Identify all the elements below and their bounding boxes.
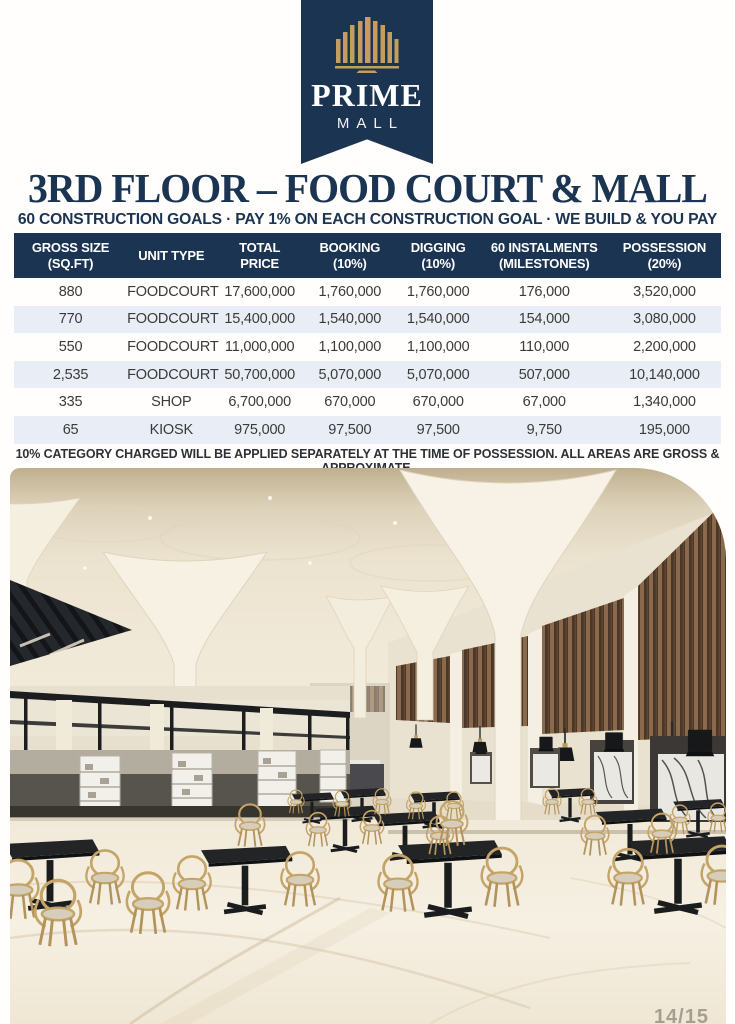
table-cell: 770 bbox=[14, 306, 127, 334]
flyer-page: PRIME MALL 3RD FLOOR – FOOD COURT & MALL… bbox=[0, 0, 735, 1024]
table-cell: 1,540,000 bbox=[304, 306, 396, 334]
table-cell: 670,000 bbox=[396, 388, 481, 416]
table-cell: 975,000 bbox=[215, 416, 303, 444]
table-cell: 67,000 bbox=[481, 388, 608, 416]
table-header-cell: DIGGING(10%) bbox=[396, 233, 481, 278]
table-cell: 176,000 bbox=[481, 278, 608, 306]
table-cell: 10,140,000 bbox=[608, 361, 721, 389]
table-cell: 1,540,000 bbox=[396, 306, 481, 334]
table-cell: 50,700,000 bbox=[215, 361, 303, 389]
table-cell: 335 bbox=[14, 388, 127, 416]
table-cell: 3,080,000 bbox=[608, 306, 721, 334]
table-row: 550 FOODCOURT 11,000,000 1,100,000 1,100… bbox=[14, 333, 721, 361]
table-cell: 9,750 bbox=[481, 416, 608, 444]
table-row: 335 SHOP 6,700,000 670,000 670,000 67,00… bbox=[14, 388, 721, 416]
table-cell: 5,070,000 bbox=[304, 361, 396, 389]
table-cell: 11,000,000 bbox=[215, 333, 303, 361]
table-cell: 507,000 bbox=[481, 361, 608, 389]
table-cell: 1,100,000 bbox=[396, 333, 481, 361]
table-row: 65 KIOSK 975,000 97,500 97,500 9,750 195… bbox=[14, 416, 721, 444]
table-cell: KIOSK bbox=[127, 416, 215, 444]
table-cell: 1,760,000 bbox=[396, 278, 481, 306]
table-row: 880 FOODCOURT 17,600,000 1,760,000 1,760… bbox=[14, 278, 721, 306]
table-header-cell: GROSS SIZE(SQ.FT) bbox=[14, 233, 127, 278]
page-title: 3RD FLOOR – FOOD COURT & MALL bbox=[11, 166, 724, 210]
brand-pennant: PRIME MALL bbox=[301, 0, 433, 164]
table-cell: 195,000 bbox=[608, 416, 721, 444]
table-cell: 1,100,000 bbox=[304, 333, 396, 361]
table-cell: 2,535 bbox=[14, 361, 127, 389]
table-header-row: GROSS SIZE(SQ.FT) UNIT TYPE TOTALPRICE B… bbox=[14, 233, 721, 278]
table-cell: 154,000 bbox=[481, 306, 608, 334]
table-header-cell: 60 INSTALMENTS(MILESTONES) bbox=[481, 233, 608, 278]
table-header-cell: TOTALPRICE bbox=[215, 233, 303, 278]
table-cell: 550 bbox=[14, 333, 127, 361]
brand-name: PRIME bbox=[301, 79, 433, 111]
table-header-cell: UNIT TYPE bbox=[127, 233, 215, 278]
table-cell: 5,070,000 bbox=[396, 361, 481, 389]
brand-subname: MALL bbox=[301, 115, 433, 132]
table-cell: 17,600,000 bbox=[215, 278, 303, 306]
table-cell: 6,700,000 bbox=[215, 388, 303, 416]
table-cell: 97,500 bbox=[304, 416, 396, 444]
table-cell: SHOP bbox=[127, 388, 215, 416]
table-cell: 15,400,000 bbox=[215, 306, 303, 334]
table-cell: FOODCOURT bbox=[127, 361, 215, 389]
table-cell: 110,000 bbox=[481, 333, 608, 361]
table-cell: 65 bbox=[14, 416, 127, 444]
page-subtitle: 60 CONSTRUCTION GOALS · PAY 1% ON EACH C… bbox=[7, 211, 727, 229]
table-header-cell: BOOKING(10%) bbox=[304, 233, 396, 278]
table-cell: 3,520,000 bbox=[608, 278, 721, 306]
page-number: 14/15 bbox=[654, 1006, 709, 1024]
table-cell: FOODCOURT bbox=[127, 333, 215, 361]
table-row: 770 FOODCOURT 15,400,000 1,540,000 1,540… bbox=[14, 306, 721, 334]
table-header-cell: POSSESSION(20%) bbox=[608, 233, 721, 278]
foodcourt-photo bbox=[10, 468, 726, 1024]
table-cell: FOODCOURT bbox=[127, 278, 215, 306]
price-table: GROSS SIZE(SQ.FT) UNIT TYPE TOTALPRICE B… bbox=[14, 233, 721, 444]
foodcourt-render bbox=[10, 468, 726, 1024]
table-cell: 2,200,000 bbox=[608, 333, 721, 361]
table-cell: 670,000 bbox=[304, 388, 396, 416]
table-cell: FOODCOURT bbox=[127, 306, 215, 334]
table-cell: 1,340,000 bbox=[608, 388, 721, 416]
table-cell: 97,500 bbox=[396, 416, 481, 444]
table-cell: 880 bbox=[14, 278, 127, 306]
building-icon bbox=[335, 15, 399, 73]
table-row: 2,535 FOODCOURT 50,700,000 5,070,000 5,0… bbox=[14, 361, 721, 389]
table-cell: 1,760,000 bbox=[304, 278, 396, 306]
